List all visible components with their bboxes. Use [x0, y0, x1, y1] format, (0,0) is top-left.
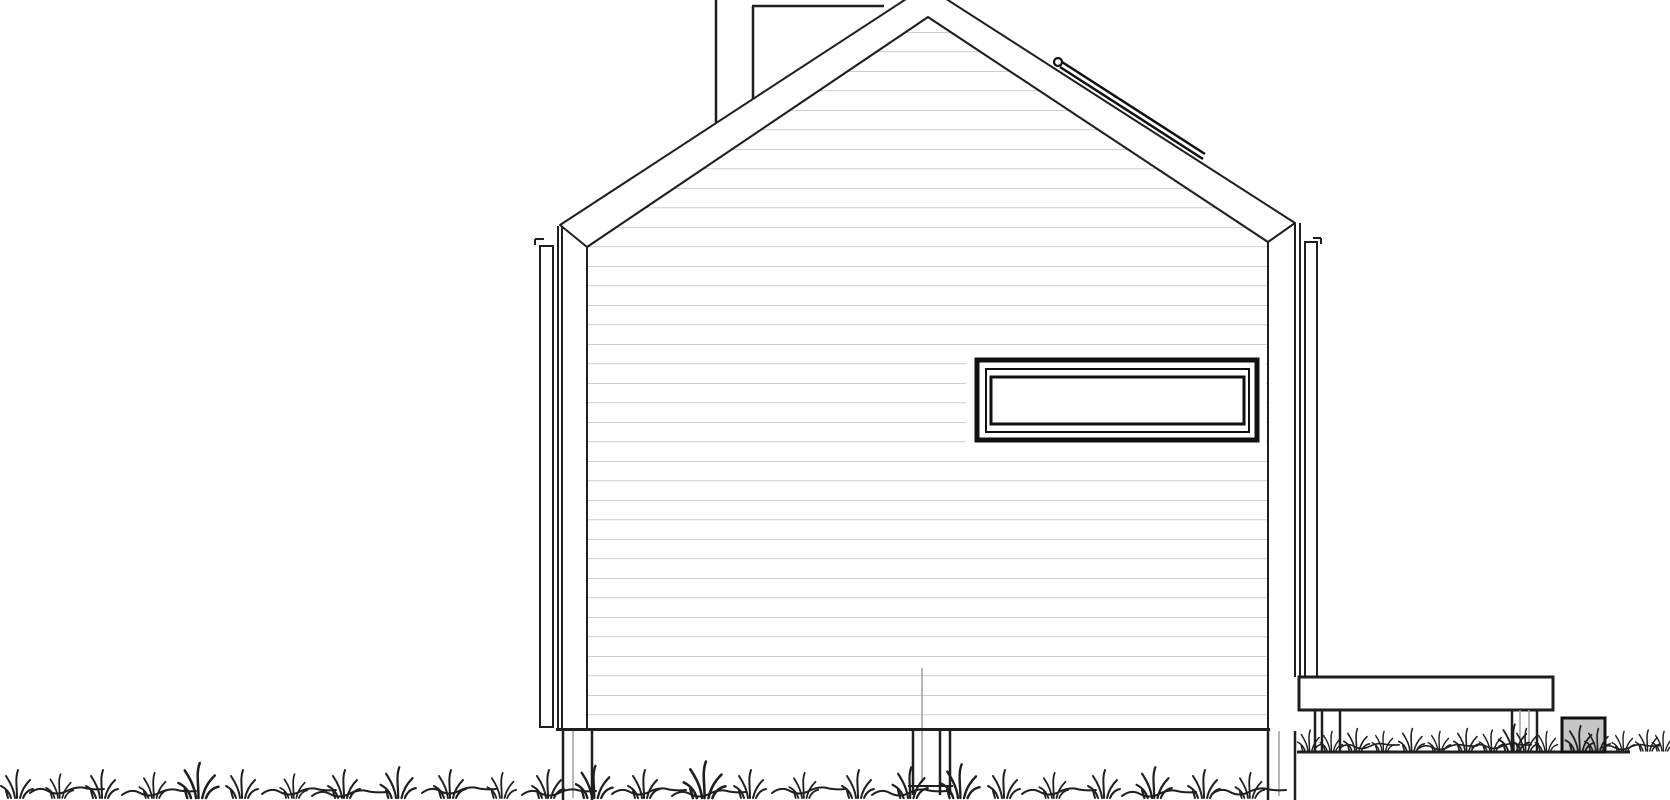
- grass-strip-right: [1298, 724, 1670, 751]
- corner-trim-left: [535, 226, 562, 729]
- corner-trim-right: [1295, 223, 1321, 677]
- side-deck: [1299, 677, 1553, 752]
- window-sash: [991, 377, 1244, 424]
- ribbon-window: [977, 360, 1257, 440]
- grass-strip-main: [1, 762, 1286, 798]
- elevation-drawing: [0, 0, 1670, 800]
